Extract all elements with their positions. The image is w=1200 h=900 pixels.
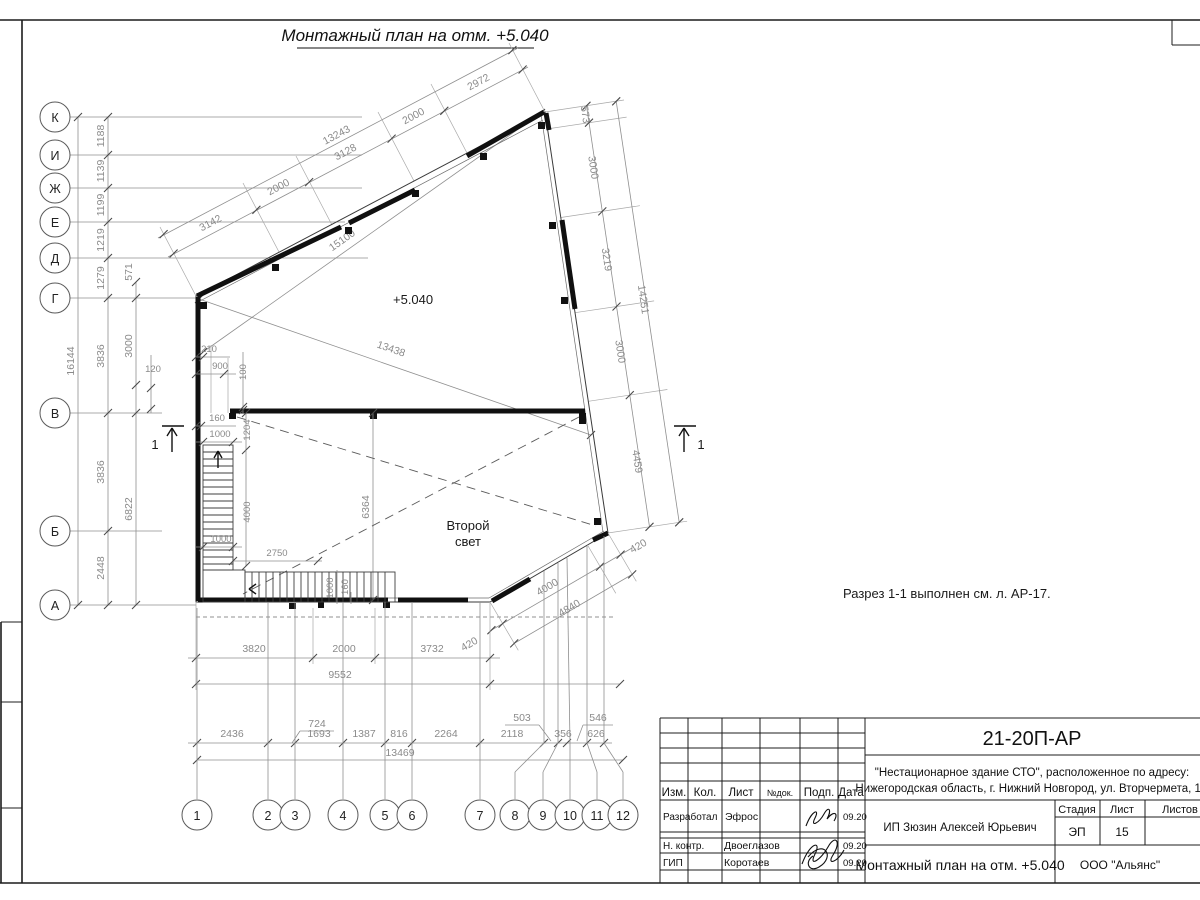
- dim-top-4: 2000: [400, 106, 426, 128]
- axis-label-12: 12: [616, 809, 630, 823]
- title-block: 21-20П-АР "Нестационарное здание СТО", р…: [660, 718, 1200, 883]
- dim-right-4: 3000: [612, 339, 627, 364]
- dim-210: 210: [201, 344, 217, 355]
- dim-6822: 6822: [123, 497, 135, 521]
- dim-right-2: 3000: [585, 155, 600, 180]
- axis-label-11: 11: [591, 809, 604, 823]
- sheets-label: Листов: [1162, 804, 1198, 816]
- dim-right-5: 4459: [629, 449, 644, 474]
- interior-dimensions: 210 900 100 160 1000 1204 4000 1000 2750…: [192, 344, 377, 604]
- sheet-number: 15: [1115, 825, 1129, 839]
- tb-header-kol: Кол.: [694, 787, 717, 799]
- dim-diag-4000: 4000: [534, 576, 560, 598]
- axis-label-10: 10: [563, 809, 577, 823]
- dim-chain-2118: 2118: [501, 728, 524, 740]
- dim-2750: 2750: [266, 548, 287, 559]
- axis-label-D: Д: [51, 252, 60, 266]
- axis-label-7: 7: [477, 809, 484, 823]
- dim-chain-total: 13469: [385, 747, 414, 759]
- dim-right-total: 14251: [635, 284, 651, 315]
- void-dashed-lines: [237, 417, 596, 594]
- axis-label-8: 8: [512, 809, 519, 823]
- axis-label-5: 5: [382, 809, 389, 823]
- dim-1000b: 1000: [210, 534, 231, 545]
- project-address-line2: Нижегородская область, г. Нижний Новгоро…: [855, 783, 1200, 795]
- dim-13438: 13438: [375, 339, 407, 360]
- dim-left-total: 16144: [65, 346, 77, 375]
- dim-chain-356: 356: [554, 728, 572, 740]
- project-code: 21-20П-АР: [983, 728, 1082, 750]
- dim-chain-503: 503: [513, 712, 531, 724]
- dim-4000: 4000: [242, 501, 253, 522]
- dim-160: 160: [209, 413, 225, 424]
- dim-1000r: 1000: [325, 577, 336, 598]
- dim-b-a: 2448: [95, 556, 107, 580]
- dim-chain-724: 724: [308, 718, 326, 730]
- section-mark-left-label: 1: [151, 437, 158, 452]
- drawing-title: Монтажный план на отм. +5.040: [281, 26, 549, 48]
- tb-role-2: Н. контр.: [663, 841, 704, 852]
- numbered-axis-chain: 2436 1693 1387 816 2264 2118 356 626 724…: [188, 712, 627, 764]
- elevation-label: +5.040: [393, 292, 433, 307]
- dim-100: 100: [238, 364, 249, 380]
- dim-k-i: 1188: [95, 125, 107, 148]
- dim-top-1: 3142: [197, 213, 223, 235]
- axis-label-4: 4: [340, 809, 347, 823]
- axis-label-6: 6: [409, 809, 416, 823]
- dim-bottom-420: 420: [459, 635, 480, 654]
- project-address-line1: "Нестационарное здание СТО", расположенн…: [875, 767, 1190, 779]
- dim-bottom-2: 2000: [332, 643, 356, 655]
- doc-title: Монтажный план на отм. +5.040: [855, 857, 1065, 873]
- left-dimension-lines: 16144 1188 1139 1199 1219 1279 3836 3836…: [65, 113, 161, 609]
- drawing-title-text: Монтажный план на отм. +5.040: [281, 26, 549, 45]
- dim-120: 120: [145, 364, 161, 375]
- room-label-line1: Второй: [447, 518, 490, 533]
- sheet-frame: [0, 20, 1200, 883]
- dim-corner-420: 420: [628, 537, 649, 556]
- dim-i-zh: 1139: [95, 160, 107, 183]
- dim-chain-2436: 2436: [220, 728, 244, 740]
- numbered-axis-bubbles: 1 2 3 4 5 6 7 8 9 10 11 12: [182, 800, 638, 830]
- dim-6364: 6364: [360, 495, 372, 519]
- axis-label-A: А: [51, 599, 60, 613]
- dim-1000: 1000: [209, 429, 230, 440]
- dim-v-b: 3836: [95, 460, 107, 484]
- tb-role-1: Разработал: [663, 811, 718, 823]
- dim-bottom-total: 9552: [328, 669, 352, 681]
- dim-g-v: 3836: [95, 344, 107, 368]
- axis-label-9: 9: [540, 809, 547, 823]
- tb-date-2: 09.20: [843, 841, 867, 852]
- signature-1: [806, 809, 836, 826]
- numbered-axis-lines: [197, 536, 623, 799]
- dim-diag-4840: 4840: [556, 597, 582, 619]
- dim-right-1: 573: [578, 105, 592, 124]
- dim-bottom-3: 3732: [420, 643, 444, 655]
- dim-d-g: 1279: [95, 266, 107, 290]
- dim-160r: 160: [340, 579, 351, 595]
- section-mark-right: 1: [674, 426, 705, 452]
- axis-label-Zh: Ж: [49, 182, 61, 196]
- drawing-sheet: Монтажный план на отм. +5.040 16144 1188…: [0, 0, 1200, 900]
- tb-name-2: Двоеглазов: [724, 840, 780, 852]
- dim-bottom-1: 3820: [242, 643, 266, 655]
- bottom-dimension-chains: 3820 2000 3732 9552: [188, 602, 624, 690]
- tb-date-1: 09.20: [843, 812, 867, 823]
- plan-labels: +5.040 Второй свет Разрез 1-1 выполнен с…: [393, 292, 1051, 601]
- tb-name-3: Коротаев: [724, 857, 770, 869]
- dim-571: 571: [123, 263, 135, 281]
- tb-name-1: Эфрос: [725, 811, 758, 823]
- axis-label-1: 1: [194, 809, 201, 823]
- axis-label-B: Б: [51, 525, 59, 539]
- room-label-line2: свет: [455, 534, 481, 549]
- tb-header-ndok: №док.: [767, 788, 793, 798]
- tb-header-data: Дата: [838, 787, 864, 799]
- section-mark-right-label: 1: [697, 437, 704, 452]
- section-note: Разрез 1-1 выполнен см. л. АР-17.: [843, 586, 1051, 601]
- axis-label-E: Е: [51, 216, 59, 230]
- axis-label-V: В: [51, 407, 59, 421]
- axis-label-I: И: [51, 149, 60, 163]
- dim-3000-left: 3000: [123, 334, 135, 358]
- dim-chain-626: 626: [587, 728, 605, 740]
- stage-value: ЭП: [1068, 825, 1085, 839]
- stage-label: Стадия: [1058, 804, 1096, 816]
- tb-role-3: ГИП: [663, 858, 683, 869]
- dim-top-3: 3128: [332, 142, 358, 164]
- dim-right-3: 3219: [599, 247, 614, 272]
- dim-chain-1387: 1387: [352, 728, 376, 740]
- stairs: [203, 445, 395, 602]
- dim-zh-e: 1199: [95, 194, 107, 217]
- axis-label-G: Г: [52, 292, 59, 306]
- dim-1204: 1204: [242, 419, 253, 440]
- client-name: ИП Зюзин Алексей Юрьевич: [883, 822, 1036, 834]
- organization-name: ООО "Альянс": [1080, 858, 1160, 872]
- tb-header-list: Лист: [729, 787, 755, 799]
- axis-label-3: 3: [292, 809, 299, 823]
- tb-header-izm: Изм.: [662, 787, 687, 799]
- section-mark-left: 1: [151, 426, 184, 452]
- axis-label-2: 2: [265, 809, 272, 823]
- tb-header-podp: Подп.: [804, 787, 835, 799]
- bottom-right-diagonal-chain: 4000 4840 420: [459, 533, 636, 654]
- dim-chain-816: 816: [390, 728, 408, 740]
- dim-e-d: 1219: [95, 228, 107, 252]
- diagonal-dimensions: 15100 13438: [195, 109, 595, 439]
- axis-label-K: К: [51, 111, 59, 125]
- right-dimension-chain: 573 3000 3219 3000 4459 14251 420: [545, 97, 687, 556]
- dim-top-5: 2972: [465, 72, 491, 94]
- dim-chain-2264: 2264: [434, 728, 458, 740]
- dim-top-2: 2000: [265, 177, 291, 199]
- sheet-label: Лист: [1110, 804, 1134, 816]
- dim-900: 900: [212, 361, 228, 372]
